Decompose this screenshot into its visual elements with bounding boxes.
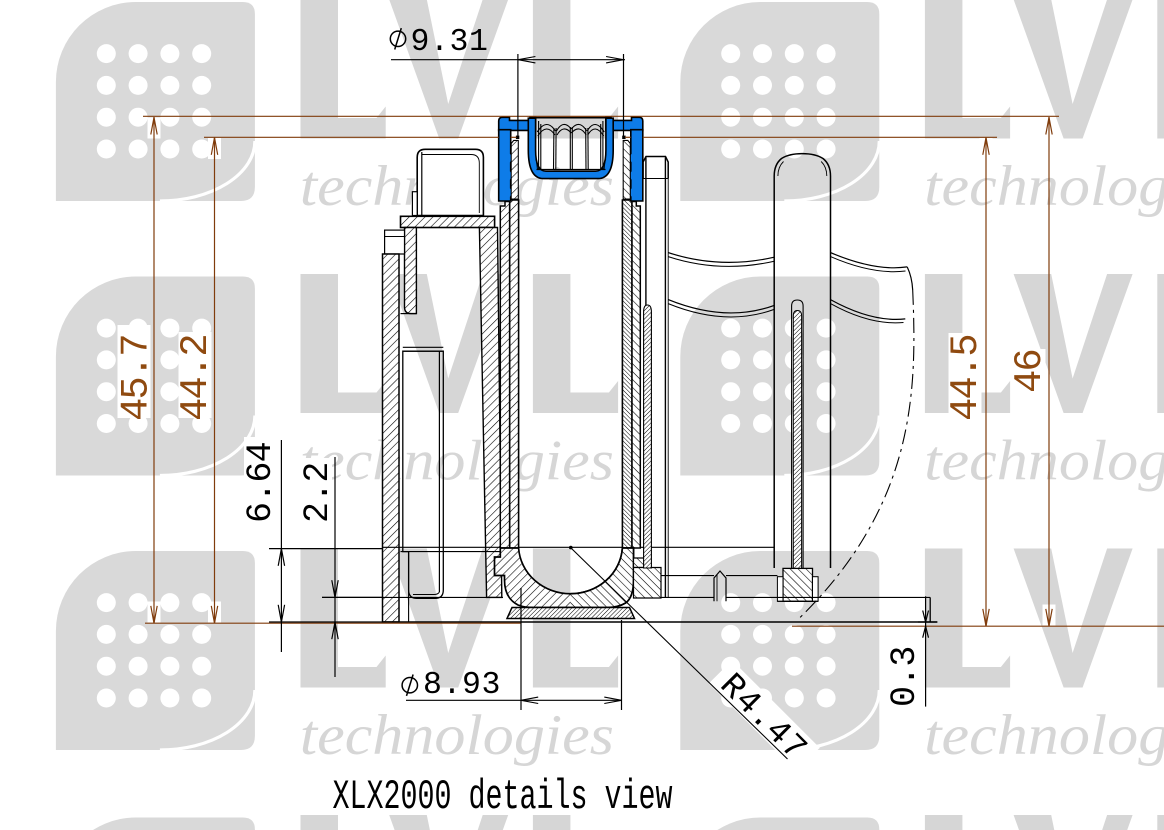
svg-text:8.93: 8.93	[423, 668, 501, 703]
svg-text:44.5: 44.5	[944, 335, 988, 421]
svg-text:45.7: 45.7	[115, 335, 159, 421]
svg-text:XLX2000 details view: XLX2000 details view	[333, 773, 673, 821]
svg-text:44.2: 44.2	[174, 335, 218, 421]
svg-text:6.64: 6.64	[241, 442, 281, 523]
svg-text:9.31: 9.31	[411, 25, 489, 60]
svg-text:46: 46	[1008, 350, 1052, 393]
svg-text:2.2: 2.2	[298, 462, 338, 523]
svg-text:0.3: 0.3	[885, 646, 925, 707]
